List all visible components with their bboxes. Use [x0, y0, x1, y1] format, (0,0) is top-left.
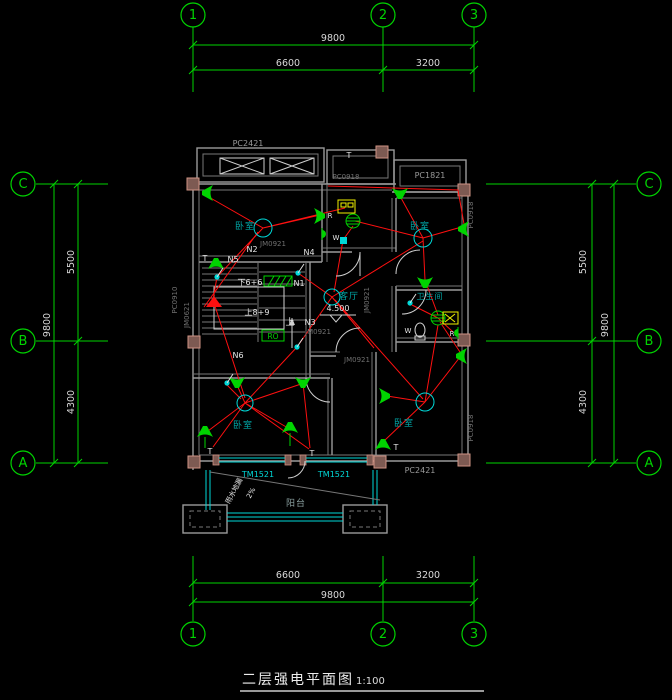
- dim-text: 6600: [276, 570, 300, 581]
- circuit-label: N5: [227, 255, 238, 264]
- dim-text: 3200: [416, 570, 440, 581]
- grid-bottom: 1 2 3 6600 3200 9800: [181, 556, 486, 646]
- grid-label: 2: [379, 627, 387, 642]
- floor-plan-canvas: 1 2 3 9800 6600 3200 1 2 3 6600 3200 980…: [0, 0, 672, 700]
- cad-electrical-plan: 1 2 3 9800 6600 3200 1 2 3 6600 3200 980…: [0, 0, 672, 700]
- wall-light: [379, 388, 390, 404]
- door-label: JM0921: [363, 287, 371, 314]
- grid-label: C: [644, 177, 653, 192]
- pipe-label: W: [333, 234, 340, 242]
- circuit-label: N3: [304, 318, 315, 327]
- toilet: [415, 323, 425, 340]
- window-label: PC0918: [333, 173, 360, 181]
- switch: [407, 294, 416, 306]
- window-label: PC2421: [233, 139, 264, 148]
- room-label: 卧室: [394, 417, 414, 429]
- wall-light: [208, 258, 224, 269]
- window-label: PC2421: [405, 466, 436, 475]
- level-label: 4.500: [327, 304, 350, 313]
- dim-text: 6600: [276, 58, 300, 69]
- switch-t-label: T: [346, 151, 352, 160]
- water-heater: [338, 200, 355, 213]
- switch: [295, 264, 304, 276]
- door-swings: [288, 250, 426, 478]
- switch-t-label: T: [207, 447, 213, 456]
- switch-t-label: T: [309, 449, 315, 458]
- grid-label: B: [19, 334, 28, 349]
- dim-text: 5500: [66, 250, 77, 274]
- grid-top: 1 2 3 9800 6600 3200: [181, 3, 486, 92]
- wall-light: [375, 439, 391, 450]
- grid-right: C B A 5500 4300 9800: [486, 172, 661, 475]
- room-label: 卧室: [235, 220, 255, 232]
- pipe-label: W: [405, 327, 412, 335]
- grid-left: C B A 9800 5500 4300: [11, 172, 108, 475]
- room-label: 卧室: [233, 419, 253, 431]
- door-label: JM0921: [259, 240, 286, 248]
- switch: [294, 338, 303, 350]
- wall-light: [392, 188, 408, 199]
- switch-t-label: T: [393, 443, 399, 452]
- window-label: PC0918: [467, 202, 475, 229]
- dim-text: 3200: [416, 58, 440, 69]
- window-label: PC1821: [415, 171, 446, 180]
- grid-label: 1: [189, 627, 197, 642]
- grid-label: C: [18, 177, 27, 192]
- dim-text: 9800: [321, 590, 345, 601]
- dim-text: 4300: [578, 390, 589, 414]
- title-block: 二层强电平面图 1:100: [240, 672, 484, 691]
- room-label: 客厅: [339, 290, 359, 302]
- pipe-label: R: [328, 212, 333, 220]
- stair-up-label: 上: [285, 317, 294, 328]
- dim-text: 5500: [578, 250, 589, 274]
- drain-label: 雨水地漏: [223, 476, 244, 505]
- stair-run-label: 下6+6: [238, 278, 263, 287]
- drawing-scale: 1:100: [356, 676, 385, 687]
- grid-label: 3: [470, 8, 478, 23]
- circuit-label: N4: [303, 248, 314, 257]
- grid-label: 1: [189, 8, 197, 23]
- meter-box-label: RO: [267, 332, 278, 341]
- slope-label: 2%: [245, 486, 257, 500]
- circuit-label: N1: [293, 279, 304, 288]
- dim-text: 9800: [600, 313, 611, 337]
- grid-label: 3: [470, 627, 478, 642]
- wall-light: [202, 185, 213, 201]
- dim-text: 9800: [42, 313, 53, 337]
- circuit-label: N2: [246, 245, 257, 254]
- grid-label: B: [645, 334, 654, 349]
- glazing: [183, 455, 387, 533]
- room-label: 卫生间: [417, 291, 444, 301]
- grid-label: A: [645, 456, 654, 471]
- grid-label: A: [19, 456, 28, 471]
- dim-text: 4300: [66, 390, 77, 414]
- room-label: 阳台: [286, 497, 306, 509]
- drawing-title: 二层强电平面图: [242, 672, 354, 688]
- circuit-label: N6: [232, 351, 243, 360]
- window-label: TM1521: [317, 470, 350, 479]
- window-label: PC0910: [171, 287, 179, 314]
- dim-text: 9800: [321, 33, 345, 44]
- junction-box: [340, 237, 347, 244]
- window-label: JM0621: [183, 302, 191, 329]
- labels: PC2421 PC1821 PC0918 PC2421 PC0910 JM062…: [171, 139, 475, 509]
- level-mark: [320, 315, 356, 322]
- switch-t-label: T: [202, 254, 208, 263]
- stair-run-label: 上8+9: [245, 308, 270, 317]
- grid-label: 2: [379, 8, 387, 23]
- socket: [454, 327, 458, 339]
- pipe-label: R: [450, 330, 455, 338]
- room-label: 卧室: [410, 220, 430, 232]
- door-label: JM0921: [304, 328, 331, 336]
- door-label: JM0921: [343, 356, 370, 364]
- window-label: PC0918: [467, 415, 475, 442]
- window-label: TM1521: [241, 470, 274, 479]
- exhaust-fan: [346, 214, 360, 228]
